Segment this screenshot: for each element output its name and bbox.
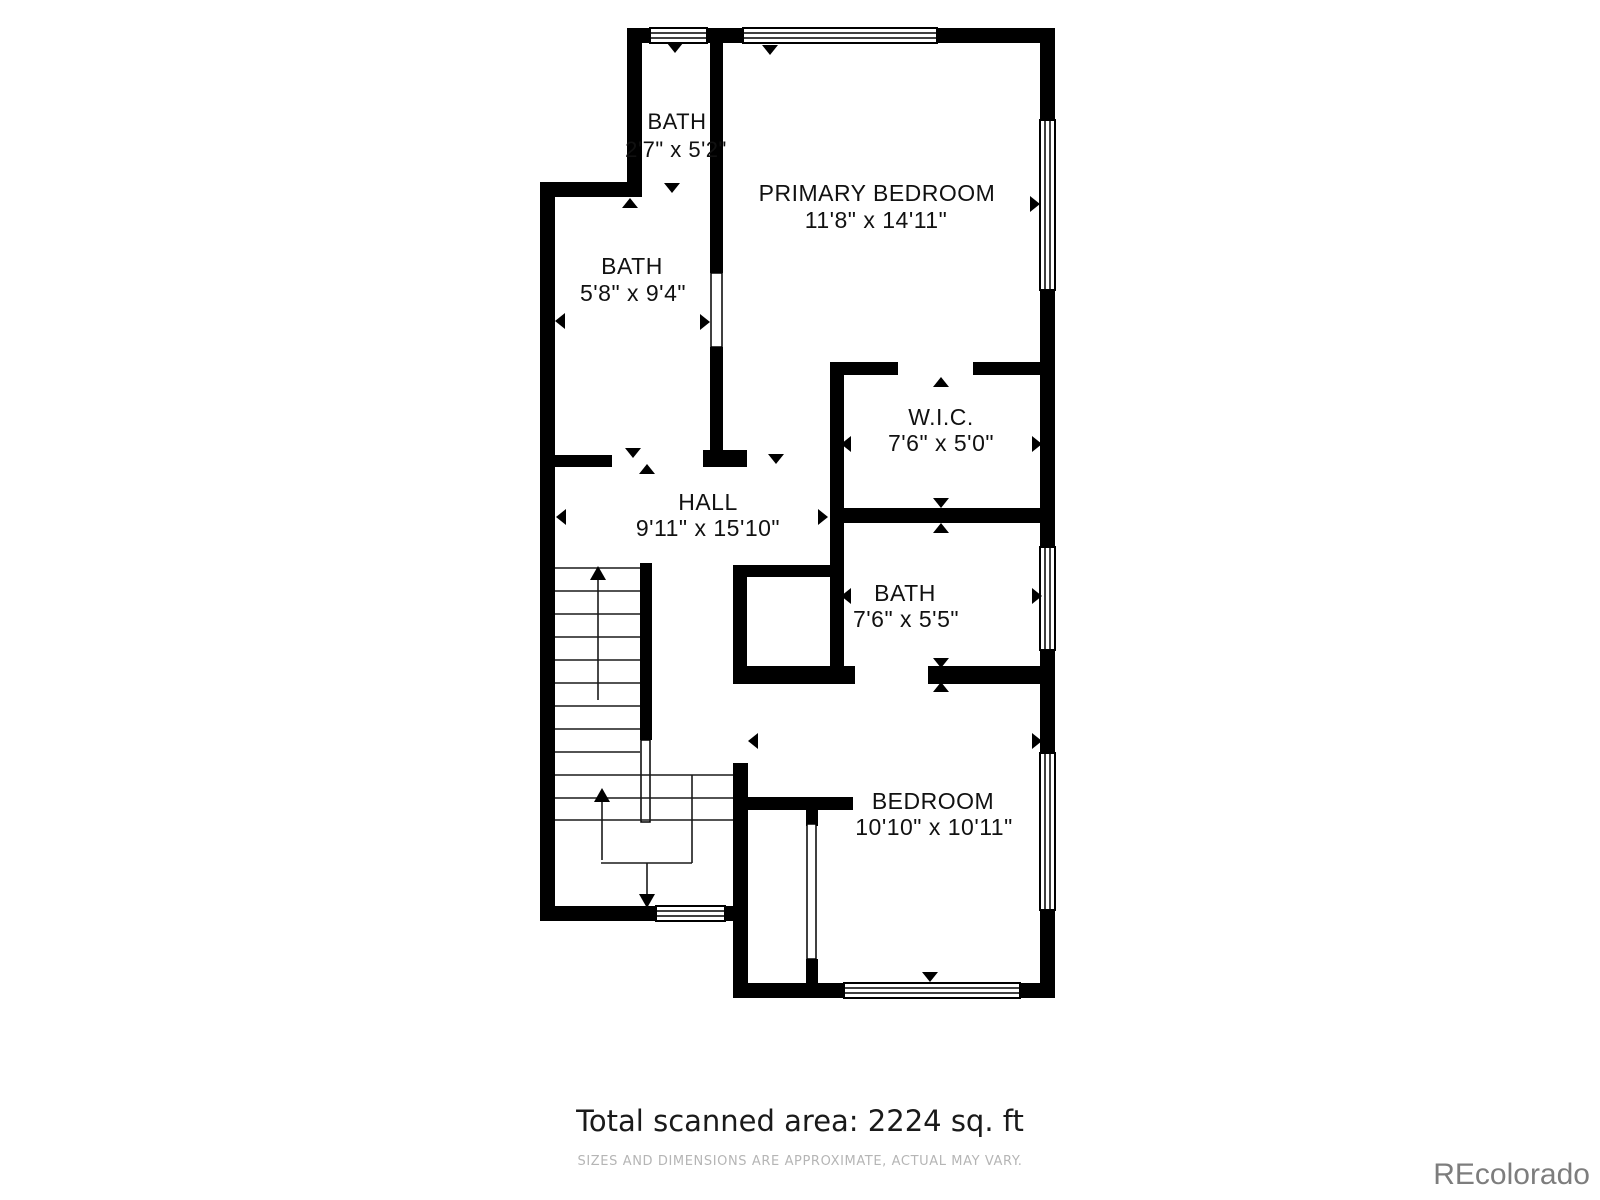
stair-down-arrow-icon [639, 894, 655, 908]
window-primary-right [1040, 120, 1055, 290]
room-dims-wic: 7'6" x 5'0" [888, 430, 994, 456]
door-leaf-stair-corridor [641, 740, 650, 822]
window-bath-right [1040, 547, 1055, 650]
room-dims-bath-primary: 5'8" x 9'4" [580, 280, 686, 306]
floor-plan-drawing: BATH 2'7" x 5'2" PRIMARY BEDROOM 11'8" x… [0, 0, 1600, 1200]
disclaimer-text: SIZES AND DIMENSIONS ARE APPROXIMATE, AC… [0, 1154, 1600, 1169]
recolorado-watermark: REcolorado [1433, 1158, 1590, 1192]
window-bedroom-right [1040, 753, 1055, 910]
room-label-bath-primary: BATH [601, 253, 663, 279]
room-label-bedroom: BEDROOM [872, 788, 994, 814]
walls [540, 28, 1055, 998]
room-label-wic: W.I.C. [908, 404, 974, 430]
room-dims-bedroom: 10'10" x 10'11" [855, 814, 1013, 840]
window-stairs-bottom [656, 906, 725, 921]
floor-plan-canvas: BATH 2'7" x 5'2" PRIMARY BEDROOM 11'8" x… [0, 0, 1600, 1200]
window-bath-small-top [650, 28, 707, 43]
window-bedroom-bottom [844, 983, 1020, 998]
stair-up-arrow2-icon [594, 788, 610, 802]
room-dims-hall: 9'11" x 15'10" [636, 515, 780, 541]
room-dims-bath-hall: 7'6" x 5'5" [853, 606, 959, 632]
door-leaves [641, 273, 816, 959]
room-label-bath-hall: BATH [874, 580, 936, 606]
room-label-hall: HALL [678, 489, 738, 515]
room-dims-primary-bedroom: 11'8" x 14'11" [805, 207, 948, 233]
room-dims-bath-small: 2'7" x 5'2" [625, 137, 727, 162]
room-label-primary-bedroom: PRIMARY BEDROOM [759, 180, 996, 206]
door-leaf-bedroom-closet [807, 824, 816, 959]
window-primary-top [743, 28, 937, 43]
total-scanned-area-text: Total scanned area: 2224 sq. ft [0, 1104, 1600, 1138]
room-label-bath-small: BATH [647, 109, 706, 134]
door-leaf-primary-bath [711, 273, 722, 347]
